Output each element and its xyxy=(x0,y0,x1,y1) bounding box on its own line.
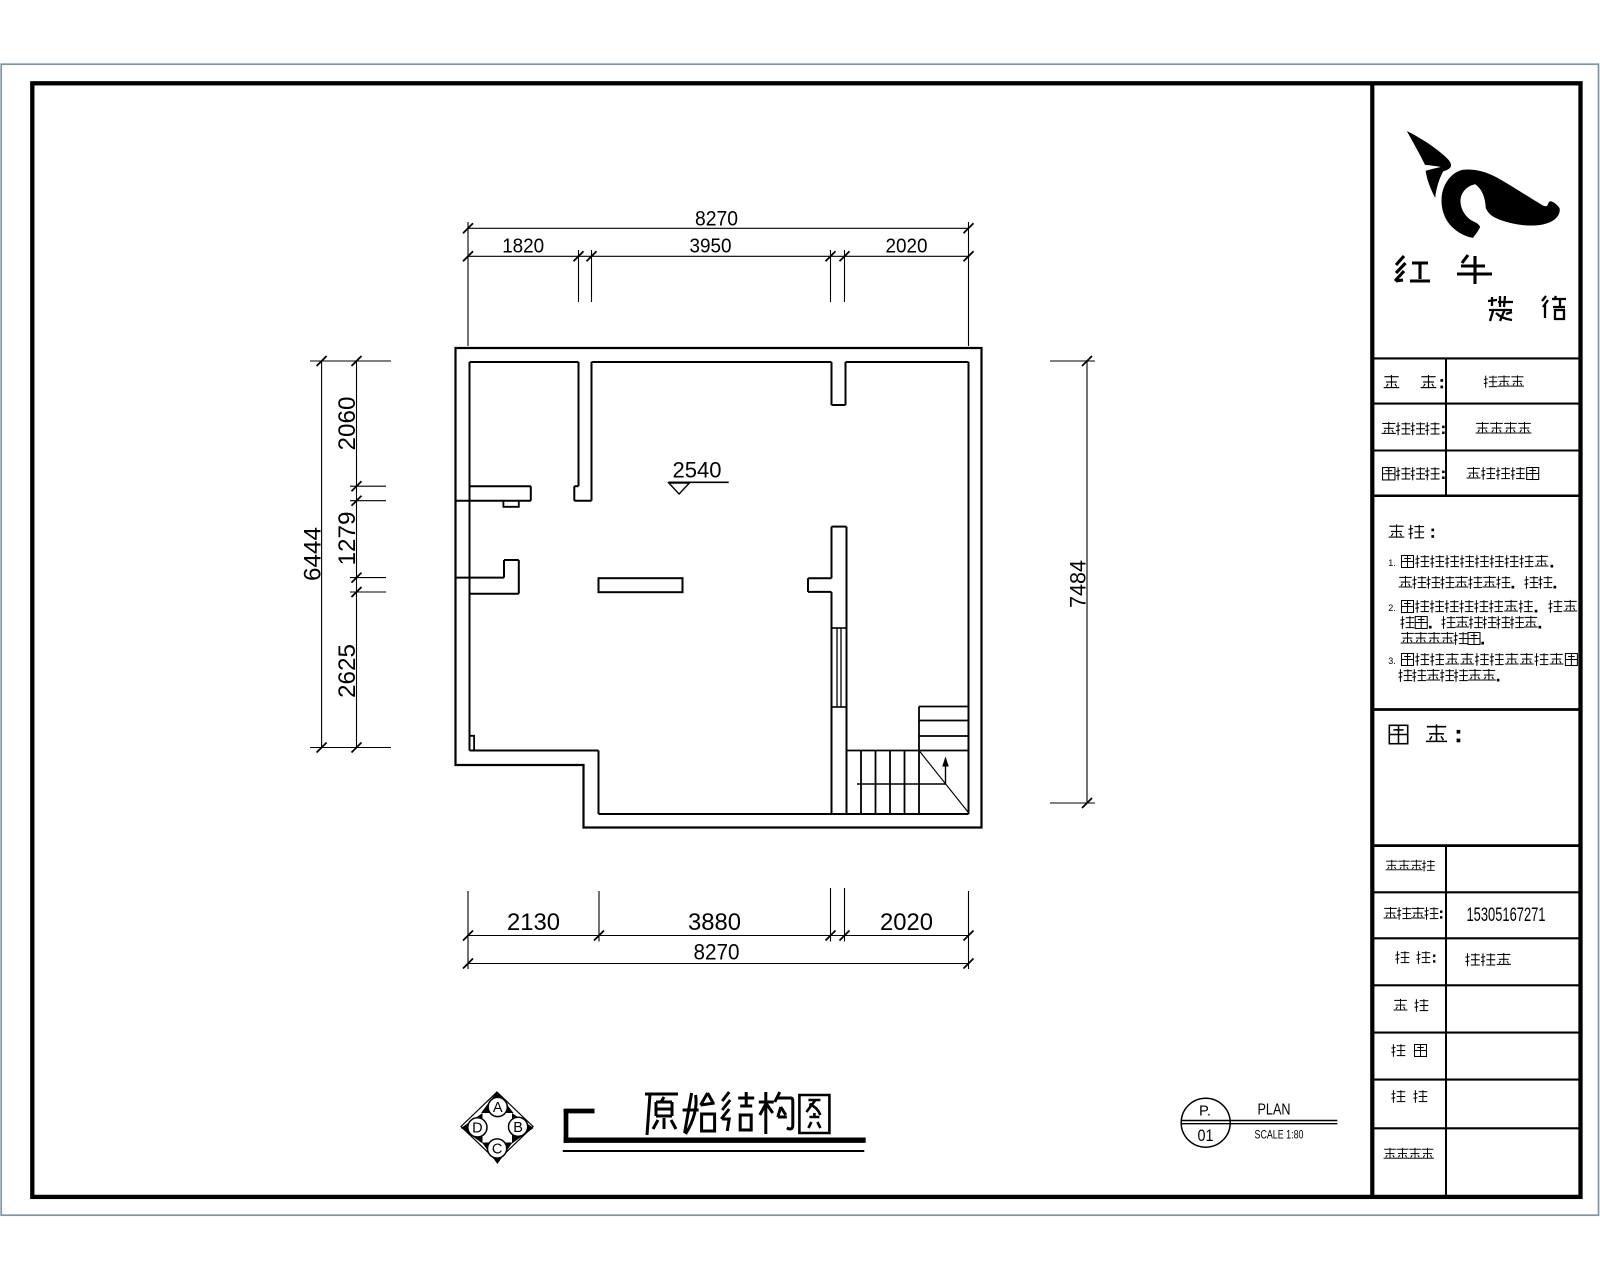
svg-text:A: A xyxy=(493,1100,503,1116)
svg-text:D: D xyxy=(472,1120,482,1136)
svg-text:B: B xyxy=(513,1120,523,1136)
svg-text:7484: 7484 xyxy=(1066,560,1091,608)
svg-text:6444: 6444 xyxy=(300,527,327,581)
svg-text:C: C xyxy=(492,1142,502,1158)
svg-text:1820: 1820 xyxy=(502,236,544,258)
svg-text:2020: 2020 xyxy=(886,236,928,258)
svg-text:2020: 2020 xyxy=(880,909,933,936)
svg-text:SCALE 1:80: SCALE 1:80 xyxy=(1255,1129,1304,1141)
svg-text:3880: 3880 xyxy=(688,909,741,936)
svg-text:15305167271: 15305167271 xyxy=(1467,905,1546,926)
svg-text:2130: 2130 xyxy=(507,909,560,936)
svg-text:P.: P. xyxy=(1199,1103,1211,1120)
svg-text:2.: 2. xyxy=(1388,603,1396,613)
svg-text:3.: 3. xyxy=(1388,656,1396,666)
svg-text:1279: 1279 xyxy=(334,512,361,566)
svg-text:2625: 2625 xyxy=(334,644,361,698)
svg-text:01: 01 xyxy=(1198,1126,1214,1145)
svg-text:8270: 8270 xyxy=(695,208,738,231)
svg-text:3950: 3950 xyxy=(690,236,732,258)
svg-text:1.: 1. xyxy=(1388,558,1396,568)
svg-text:8270: 8270 xyxy=(694,940,740,965)
svg-text:2540: 2540 xyxy=(673,458,722,483)
svg-text:PLAN: PLAN xyxy=(1258,1102,1291,1119)
svg-text:2060: 2060 xyxy=(334,397,361,451)
